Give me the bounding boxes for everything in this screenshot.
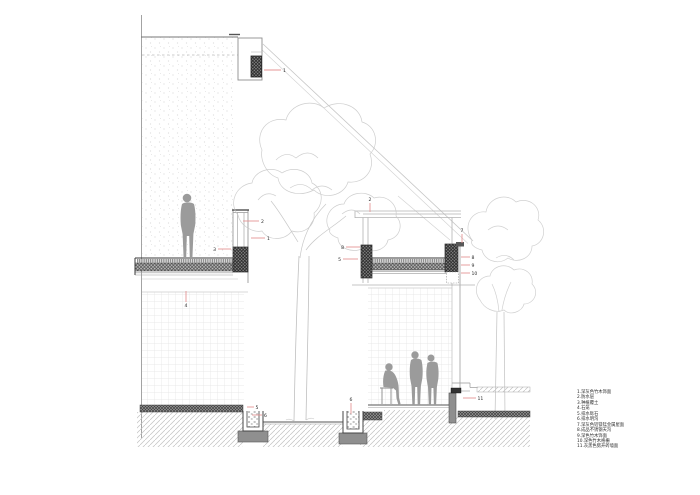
callout-drain-channel-right: 6 xyxy=(350,397,353,403)
left-tiled-wall xyxy=(142,292,248,405)
callout-metal-roof: 7 xyxy=(461,228,464,234)
callout-parapet-waterproof: 2 xyxy=(261,219,264,225)
right-tiled-wall xyxy=(368,288,452,405)
section-drawing-canvas: 1 2 1 3 4 2 7 8 5 8 9 10 5 6 6 11 1.深灰色竹… xyxy=(0,0,700,495)
callout-ridge-finish: 1 xyxy=(283,68,286,74)
callout-gabion-wall: 4 xyxy=(185,303,188,309)
callout-drain-gravel: 5 xyxy=(256,405,259,411)
tree-right xyxy=(468,197,544,419)
callout-wood-grille: 10 xyxy=(472,271,478,277)
callout-roof-waterproof: 2 xyxy=(369,197,372,203)
sunken-courtyard-floor xyxy=(263,422,343,424)
callout-roof-gravel: 5 xyxy=(338,257,341,263)
callout-wood-finish-right: 9 xyxy=(472,263,475,269)
left-terrace-slab xyxy=(135,258,233,275)
roof-slope-lines xyxy=(260,44,474,244)
callout-gutter-right: 8 xyxy=(472,255,475,261)
callout-wall-finish: 1 xyxy=(267,236,270,242)
callout-gutter-left: 8 xyxy=(341,245,344,251)
legend-item-11: 11.灰黑色劈开砖墙面 xyxy=(577,444,624,449)
right-pavilion-roof-slab xyxy=(361,242,464,283)
callout-soil: 3 xyxy=(213,247,216,253)
drainage-channel-right xyxy=(339,411,367,444)
ridge-detail xyxy=(238,38,262,80)
material-legend: 1.深灰色竹木饰面 2.防水层 3.种植覆土 4.石笼 5.排水砾石 6.排水明… xyxy=(577,390,624,450)
callout-brick-wall-base: 11 xyxy=(478,396,484,402)
left-parapet-block xyxy=(233,247,248,272)
callout-drain-channel-left: 6 xyxy=(264,413,267,419)
